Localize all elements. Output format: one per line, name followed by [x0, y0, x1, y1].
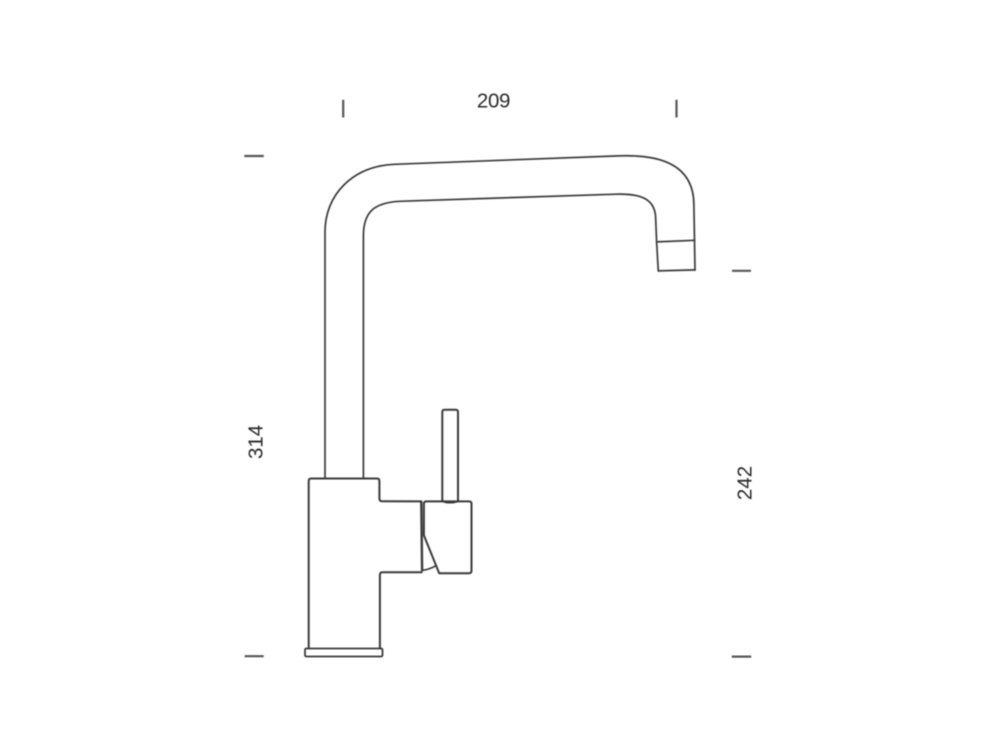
svg-text:314: 314 — [245, 425, 268, 459]
svg-text:209: 209 — [477, 90, 510, 113]
svg-text:242: 242 — [734, 466, 757, 500]
